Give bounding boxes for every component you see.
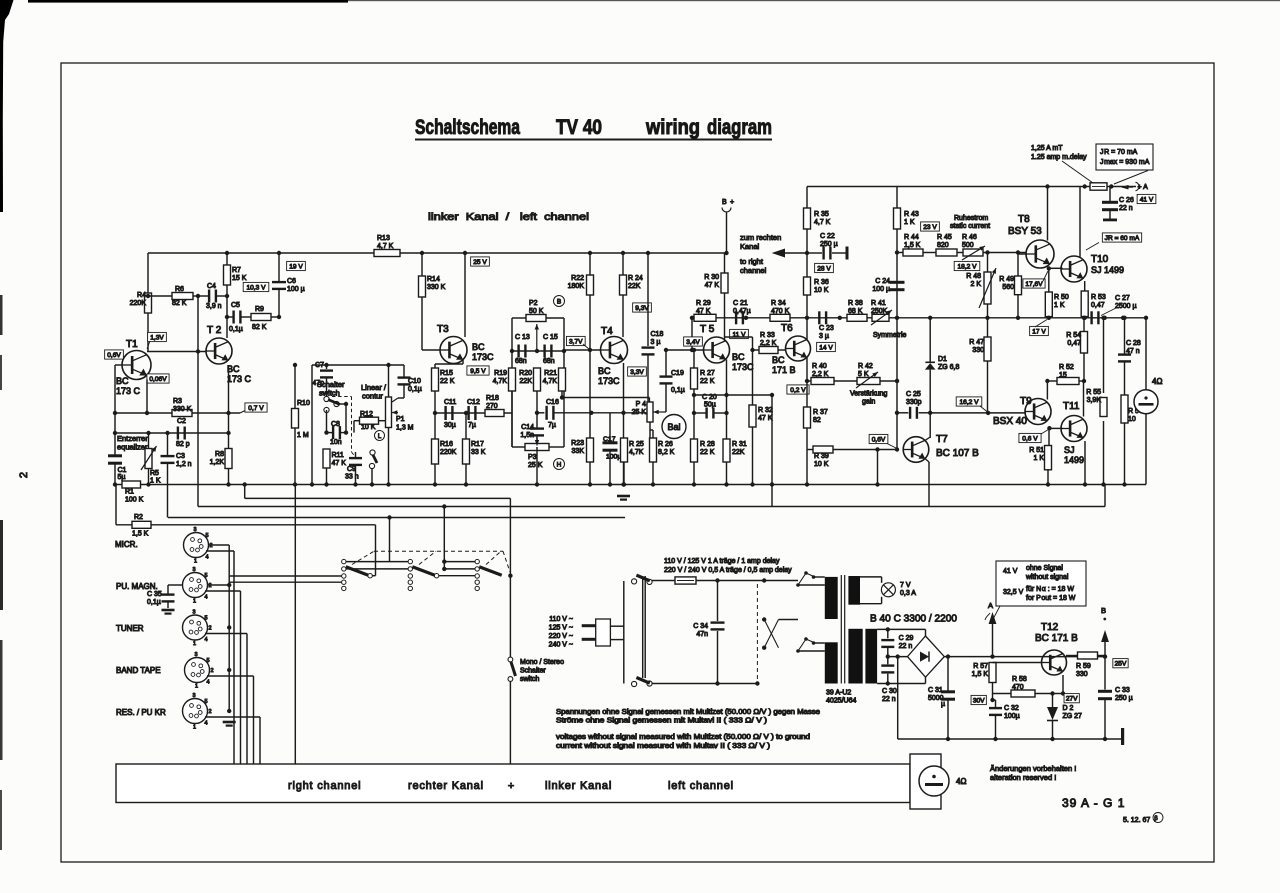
svg-text:linker Kanal: linker Kanal (545, 780, 612, 792)
svg-text:P2: P2 (529, 300, 538, 307)
svg-text:180K: 180K (568, 283, 585, 290)
svg-text:R 43: R 43 (904, 211, 919, 218)
svg-text:25 K: 25 K (632, 409, 647, 416)
svg-text:C5: C5 (231, 302, 240, 309)
svg-text:R2: R2 (134, 514, 143, 521)
svg-text:P1: P1 (396, 416, 405, 423)
svg-text:4: 4 (207, 680, 210, 686)
svg-text:220K: 220K (440, 449, 457, 456)
svg-text:R4: R4 (137, 292, 146, 299)
svg-text:BC: BC (598, 366, 611, 376)
svg-text:switch: switch (319, 389, 340, 398)
svg-text:ZG 27: ZG 27 (1063, 713, 1083, 720)
svg-text:2: 2 (211, 668, 214, 674)
svg-text:R11: R11 (332, 452, 344, 459)
svg-text:2500 µ: 2500 µ (1115, 303, 1137, 310)
svg-text:R 31: R 31 (732, 441, 747, 448)
svg-text:channel: channel (740, 266, 767, 275)
svg-text:C 30: C 30 (882, 688, 897, 695)
svg-text:1: 1 (193, 641, 196, 647)
svg-text:0,3 A: 0,3 A (900, 590, 916, 597)
svg-text:+ A: + A (1138, 184, 1149, 191)
svg-text:Kanal: Kanal (740, 242, 760, 251)
svg-text:C 35: C 35 (147, 591, 162, 598)
svg-text:22K: 22K (732, 449, 745, 456)
svg-text:22 n: 22 n (899, 643, 913, 650)
svg-text:9,5 V: 9,5 V (470, 368, 486, 375)
svg-text:3,4V: 3,4V (686, 339, 700, 346)
svg-text:Schaltschema: Schaltschema (415, 116, 520, 139)
svg-text:T12: T12 (1041, 622, 1059, 633)
svg-text:R6: R6 (175, 286, 184, 293)
svg-text:T3: T3 (437, 324, 449, 335)
svg-text:3: 3 (193, 567, 196, 573)
svg-text:R 32: R 32 (758, 407, 773, 414)
svg-text:R 57: R 57 (973, 663, 988, 670)
svg-text:3,9K: 3,9K (1087, 397, 1102, 404)
svg-text:rechter Kanal: rechter Kanal (408, 780, 484, 792)
svg-text:R22: R22 (571, 275, 584, 282)
svg-text:3 µ: 3 µ (819, 333, 829, 340)
svg-text:5µ: 5µ (118, 474, 126, 481)
svg-text:28 V: 28 V (817, 265, 831, 272)
svg-text:68n: 68n (543, 358, 555, 365)
svg-text:173C: 173C (472, 352, 494, 362)
svg-text:C7: C7 (315, 362, 324, 369)
svg-text:10: 10 (1128, 416, 1136, 423)
svg-text:5. 12. 67: 5. 12. 67 (1123, 817, 1150, 824)
svg-text:3,9 n: 3,9 n (206, 303, 222, 310)
svg-text:173 C: 173 C (116, 386, 141, 396)
svg-text:switch: switch (520, 676, 540, 683)
svg-text:4,7K: 4,7K (543, 378, 558, 385)
svg-text:+: + (730, 199, 734, 206)
svg-text:15 K: 15 K (232, 275, 247, 282)
svg-text:C 13: C 13 (515, 334, 530, 341)
svg-text:4,7 K: 4,7 K (377, 243, 394, 250)
svg-text:SJ 1499: SJ 1499 (1091, 265, 1124, 275)
svg-text:100 K: 100 K (125, 497, 144, 504)
svg-text:ohne Signal: ohne Signal (1026, 565, 1063, 572)
svg-text:R15: R15 (440, 370, 453, 377)
svg-text:R 33: R 33 (760, 332, 775, 339)
svg-text:R 42: R 42 (858, 363, 873, 370)
svg-text:270: 270 (486, 403, 498, 410)
svg-text:D1: D1 (938, 356, 947, 363)
svg-text:33 K: 33 K (471, 449, 486, 456)
svg-text:15: 15 (1059, 372, 1067, 379)
svg-text:Bal: Bal (667, 422, 680, 432)
svg-text:J R = 70 mA: J R = 70 mA (1100, 149, 1138, 156)
svg-text:39 A-U2: 39 A-U2 (826, 690, 851, 697)
svg-text:10,3 V: 10,3 V (246, 284, 266, 291)
svg-text:right channel: right channel (288, 780, 361, 792)
svg-text:R 46: R 46 (962, 234, 977, 241)
svg-text:C4: C4 (207, 283, 216, 290)
svg-text:R12: R12 (360, 411, 373, 418)
svg-text:C10: C10 (408, 378, 421, 385)
svg-text:3: 3 (193, 610, 196, 616)
svg-text:7µ: 7µ (468, 422, 476, 429)
svg-text:B 40 C 3300 / 2200: B 40 C 3300 / 2200 (870, 613, 957, 625)
svg-text:330 K: 330 K (427, 284, 446, 291)
svg-text:330: 330 (1076, 671, 1088, 678)
svg-text:R23: R23 (571, 440, 584, 447)
svg-text:C 27: C 27 (1115, 295, 1130, 302)
svg-text:R 59: R 59 (1076, 663, 1091, 670)
svg-text:C18: C18 (651, 331, 664, 338)
svg-text:82 p: 82 p (176, 441, 190, 448)
svg-text:T6: T6 (781, 323, 793, 334)
svg-text:27V: 27V (1066, 696, 1078, 703)
svg-text:82 K: 82 K (172, 300, 187, 307)
svg-text:D 2: D 2 (1063, 705, 1074, 712)
svg-text:0,7 V: 0,7 V (248, 405, 264, 412)
svg-text:47 n: 47 n (1126, 348, 1140, 355)
svg-text:R 30: R 30 (704, 274, 719, 281)
svg-text:R 55: R 55 (1086, 389, 1101, 396)
svg-text:R 52: R 52 (1059, 364, 1074, 371)
svg-text:R 38: R 38 (848, 300, 863, 307)
svg-text:1 K: 1 K (1033, 455, 1044, 462)
svg-text:39 A - G 1: 39 A - G 1 (1062, 796, 1125, 810)
svg-text:19 V: 19 V (289, 263, 303, 270)
svg-text:100µ: 100µ (606, 454, 621, 461)
svg-text:R8: R8 (215, 451, 224, 458)
svg-text:contur: contur (362, 392, 383, 401)
svg-text:1,3 M: 1,3 M (396, 425, 414, 432)
svg-text:3: 3 (194, 527, 197, 533)
svg-text:R21: R21 (544, 370, 557, 377)
svg-text:22 K: 22 K (700, 449, 715, 456)
svg-text:173C: 173C (732, 362, 754, 372)
svg-text:Änderungen vorbehalten !: Änderungen vorbehalten ! (990, 764, 1076, 773)
svg-text:17 V: 17 V (1032, 328, 1046, 335)
svg-text:25V: 25V (1115, 661, 1127, 668)
svg-text:82: 82 (813, 417, 821, 424)
svg-text:0,47µ: 0,47µ (733, 308, 751, 315)
svg-text:5 K: 5 K (858, 371, 869, 378)
svg-text:static current: static current (950, 223, 990, 230)
svg-text:T1: T1 (126, 339, 138, 350)
svg-text:3: 3 (193, 693, 196, 699)
svg-text:173 C: 173 C (227, 374, 252, 384)
svg-text:110 V ~: 110 V ~ (549, 616, 573, 623)
svg-text:R 28: R 28 (700, 441, 715, 448)
svg-text:5: 5 (205, 616, 208, 622)
svg-text:0,6V: 0,6V (872, 436, 886, 443)
svg-text:3,3V: 3,3V (630, 369, 644, 376)
svg-text:H: H (557, 462, 562, 469)
svg-text:22 n: 22 n (882, 696, 896, 703)
svg-text:without signal: without signal (1025, 574, 1069, 581)
svg-text:R 36: R 36 (814, 279, 829, 286)
svg-text:220 V ~: 220 V ~ (549, 633, 573, 640)
svg-text:1: 1 (193, 725, 196, 731)
svg-text:T8: T8 (1018, 214, 1030, 225)
svg-text:1,5 K: 1,5 K (972, 671, 989, 678)
svg-text:7µ: 7µ (548, 422, 556, 429)
svg-text:für N α : = 18 W: für N α : = 18 W (1026, 586, 1074, 593)
svg-text:5: 5 (207, 658, 210, 664)
svg-text:22 K: 22 K (440, 378, 455, 385)
svg-text:RES. / PU KR: RES. / PU KR (116, 708, 166, 717)
svg-text:R3: R3 (173, 398, 182, 405)
svg-text:1: 1 (194, 559, 197, 565)
svg-text:T 2: T 2 (207, 325, 222, 336)
svg-text:4025/U64: 4025/U64 (826, 698, 856, 705)
svg-text:5: 5 (205, 699, 208, 705)
svg-text:R16: R16 (440, 441, 453, 448)
svg-text:5: 5 (205, 573, 208, 579)
svg-text:µ: µ (941, 701, 945, 708)
svg-text:5: 5 (206, 533, 209, 539)
svg-text:T11: T11 (1063, 401, 1080, 412)
svg-text:22K: 22K (628, 283, 641, 290)
svg-text:B: B (557, 299, 561, 306)
svg-text:1 K: 1 K (1054, 302, 1065, 309)
svg-text:R 35: R 35 (814, 211, 829, 218)
svg-text:C3: C3 (176, 453, 185, 460)
svg-text:MICR.: MICR. (115, 540, 138, 549)
svg-text:C6: C6 (287, 278, 296, 285)
svg-text:T9: T9 (1020, 396, 1032, 407)
svg-text:1: 1 (193, 599, 196, 605)
svg-text:2 K: 2 K (970, 281, 981, 288)
svg-text:220 V / 240 V 0,5 A träge: 220 V / 240 V 0,5 A träge / 0,5 amp dela… (664, 567, 792, 574)
svg-text:1 K: 1 K (904, 219, 915, 226)
svg-text:820: 820 (937, 242, 949, 249)
svg-text:22K: 22K (520, 378, 533, 385)
svg-text:0,6 V: 0,6 V (1022, 435, 1038, 442)
svg-text:4: 4 (205, 721, 208, 727)
svg-text:0,2 V: 0,2 V (790, 387, 806, 394)
svg-text:10 K: 10 K (814, 461, 829, 468)
svg-text:250 µ: 250 µ (1115, 695, 1133, 702)
svg-text:R18: R18 (486, 395, 499, 402)
svg-text:R 54: R 54 (1066, 332, 1081, 339)
svg-text:16,2 V: 16,2 V (959, 399, 979, 406)
svg-text:zum rechten: zum rechten (740, 233, 781, 242)
svg-text:R 39: R 39 (814, 453, 829, 460)
svg-text:10 K: 10 K (814, 287, 829, 294)
svg-text:÷: ÷ (508, 780, 514, 792)
svg-text:SJ: SJ (1064, 445, 1075, 455)
svg-text:22 K: 22 K (700, 378, 715, 385)
svg-text:T 5: T 5 (700, 324, 715, 335)
svg-text:0,1µ: 0,1µ (229, 326, 243, 333)
svg-text:2,2 K: 2,2 K (760, 340, 777, 347)
svg-text:0,47: 0,47 (1067, 340, 1081, 347)
svg-text:0,47: 0,47 (1091, 302, 1105, 309)
svg-text:voltages without signal mea: voltages without signal measured with Mu… (556, 734, 810, 741)
svg-text:C 32: C 32 (1004, 705, 1019, 712)
svg-text:10n: 10n (330, 439, 342, 446)
svg-text:R1: R1 (125, 489, 134, 496)
svg-text:1,5 K: 1,5 K (904, 242, 921, 249)
svg-text:ZG 6,8: ZG 6,8 (938, 364, 960, 371)
svg-text:BSX 40: BSX 40 (993, 416, 1027, 427)
svg-text:R13: R13 (377, 235, 390, 242)
svg-text:C16: C16 (546, 399, 559, 406)
svg-text:J max = 930 mA: J max = 930 mA (1100, 159, 1150, 166)
svg-text:A: A (988, 601, 993, 610)
svg-text:23 V: 23 V (923, 224, 937, 231)
svg-text:TV 40: TV 40 (556, 116, 602, 139)
svg-text:C 21: C 21 (733, 300, 748, 307)
svg-text:BC: BC (116, 376, 129, 386)
svg-text:0,1µ: 0,1µ (147, 599, 161, 606)
svg-text:R 34: R 34 (771, 300, 786, 307)
svg-text:1,5 K: 1,5 K (132, 531, 149, 538)
svg-text:Ströme ohne Signal gemessen: Ströme ohne Signal gemessen mit Multavi … (556, 718, 767, 725)
svg-text:T10: T10 (1091, 254, 1109, 265)
svg-text:1,5n: 1,5n (520, 432, 534, 439)
svg-text:41 V: 41 V (1003, 568, 1018, 575)
svg-text:R 49: R 49 (999, 276, 1014, 283)
svg-text:R 53: R 53 (1091, 294, 1106, 301)
svg-text:BC: BC (732, 352, 745, 362)
svg-text:PU. MAGN.: PU. MAGN. (116, 582, 158, 591)
svg-text:125 V ~: 125 V ~ (549, 625, 573, 632)
svg-text:BSY 53: BSY 53 (1008, 226, 1042, 237)
svg-text:1 M: 1 M (297, 432, 309, 439)
svg-text:C9: C9 (347, 466, 356, 473)
svg-text:BC 107 B: BC 107 B (936, 448, 979, 459)
svg-text:BC 171 B: BC 171 B (1035, 633, 1078, 644)
svg-text:C2: C2 (177, 418, 186, 425)
svg-text:P3: P3 (528, 454, 537, 461)
svg-text:R 50: R 50 (1054, 294, 1069, 301)
svg-text:68n: 68n (515, 358, 527, 365)
svg-text:82 K: 82 K (252, 324, 267, 331)
svg-text:R 51: R 51 (1029, 447, 1044, 454)
svg-text:BAND TAPE: BAND TAPE (116, 666, 161, 675)
svg-text:7 V: 7 V (900, 582, 911, 589)
svg-text:22 n: 22 n (1119, 205, 1133, 212)
svg-text:1,2K: 1,2K (210, 459, 225, 466)
svg-text:C 33: C 33 (1115, 687, 1130, 694)
svg-text:B: B (722, 199, 727, 206)
svg-text:240 V ~: 240 V ~ (549, 642, 573, 649)
svg-text:8,2 K: 8,2 K (658, 449, 675, 456)
svg-text:C 28: C 28 (1126, 340, 1141, 347)
svg-text:4Ω: 4Ω (1152, 377, 1162, 386)
svg-text:R 25: R 25 (629, 441, 644, 448)
svg-text:P 4: P 4 (636, 401, 646, 408)
svg-text:4,7K: 4,7K (493, 378, 508, 385)
svg-text:1,3V: 1,3V (150, 334, 164, 341)
svg-text:C19: C19 (671, 370, 684, 377)
svg-text:C14: C14 (521, 424, 534, 431)
svg-text:C 25: C 25 (906, 391, 921, 398)
svg-text:470: 470 (1012, 684, 1024, 691)
svg-text:gain: gain (862, 399, 875, 406)
svg-text:R 58: R 58 (1012, 676, 1027, 683)
svg-text:left channel: left channel (668, 780, 734, 792)
svg-text:470 K: 470 K (771, 308, 790, 315)
svg-text:equalizer: equalizer (117, 443, 148, 452)
svg-text:C 23: C 23 (819, 325, 834, 332)
svg-text:β: β (1154, 816, 1158, 822)
svg-text:C 15: C 15 (543, 334, 558, 341)
svg-text:R9: R9 (255, 306, 264, 313)
svg-text:500: 500 (962, 242, 974, 249)
svg-text:0,06V: 0,06V (149, 376, 167, 383)
svg-text:171 B: 171 B (772, 365, 796, 375)
svg-text:4: 4 (205, 637, 208, 643)
svg-text:for P out = 18 W: for P out = 18 W (1026, 595, 1076, 602)
svg-text:R5: R5 (150, 470, 159, 477)
svg-text:0,1µ: 0,1µ (671, 387, 685, 394)
svg-text:2: 2 (209, 709, 212, 715)
svg-text:Spannungen ohne Signal gemes: Spannungen ohne Signal gemessen mit Mult… (556, 709, 820, 716)
svg-text:1: 1 (195, 684, 198, 690)
svg-text:173C: 173C (598, 376, 620, 386)
svg-text:R 37: R 37 (813, 409, 828, 416)
svg-text:33 n: 33 n (345, 474, 359, 481)
svg-text:25 V: 25 V (473, 259, 487, 266)
svg-text:C 29: C 29 (899, 635, 914, 642)
svg-text:Verstärkung: Verstärkung (850, 391, 887, 398)
svg-text:R17: R17 (471, 441, 484, 448)
svg-text:R 29: R 29 (696, 300, 711, 307)
svg-text:110 V / 125 V 1 A träge: 110 V / 125 V 1 A träge / 1 amp delay (664, 558, 780, 565)
svg-text:C 26: C 26 (1119, 197, 1134, 204)
svg-text:10 K: 10 K (361, 424, 376, 431)
svg-text:0,1µ: 0,1µ (408, 386, 422, 393)
svg-text:2: 2 (209, 583, 212, 589)
svg-text:C11: C11 (444, 399, 456, 406)
svg-text:R 44: R 44 (904, 234, 919, 241)
svg-text:JR = 60 mA: JR = 60 mA (1105, 235, 1140, 242)
svg-text:41 V: 41 V (1140, 196, 1154, 203)
svg-text:100 µ: 100 µ (872, 286, 890, 293)
svg-text:14 V: 14 V (819, 344, 833, 351)
svg-text:C 34: C 34 (693, 623, 708, 630)
svg-text:100µ: 100µ (1004, 713, 1020, 720)
svg-text:4,7K: 4,7K (629, 449, 644, 456)
svg-text:50 K: 50 K (529, 308, 544, 315)
svg-text:TUNER: TUNER (116, 624, 144, 633)
svg-text:2: 2 (209, 626, 212, 632)
svg-text:4Ω: 4Ω (956, 777, 966, 786)
svg-text:1499: 1499 (1064, 455, 1084, 465)
svg-text:47 K: 47 K (332, 460, 347, 467)
svg-text:50µ: 50µ (704, 402, 716, 409)
svg-text:1,25 A mT: 1,25 A mT (1031, 145, 1063, 152)
svg-text:33K: 33K (572, 448, 585, 455)
svg-text:18,2 V: 18,2 V (957, 263, 977, 270)
svg-text:30µ: 30µ (444, 422, 456, 429)
svg-text:Symmetrie: Symmetrie (873, 332, 907, 339)
svg-text:R20: R20 (519, 370, 532, 377)
svg-text:250 µ: 250 µ (820, 241, 838, 248)
svg-text:B: B (1101, 606, 1106, 615)
svg-text:C 24: C 24 (875, 278, 890, 285)
svg-text:R19: R19 (494, 370, 507, 377)
svg-text:R7: R7 (232, 267, 241, 274)
svg-text:3,7V: 3,7V (569, 338, 583, 345)
svg-text:BC: BC (472, 342, 485, 352)
svg-text:220K: 220K (130, 300, 147, 307)
svg-text:R 45: R 45 (937, 234, 952, 241)
svg-text:17,6V: 17,6V (1025, 281, 1043, 288)
svg-text:47 K: 47 K (696, 308, 711, 315)
svg-text:current without signal meas: current without signal measured with Mul… (556, 743, 770, 750)
svg-text:2: 2 (210, 543, 213, 549)
svg-text:to right: to right (740, 257, 764, 266)
